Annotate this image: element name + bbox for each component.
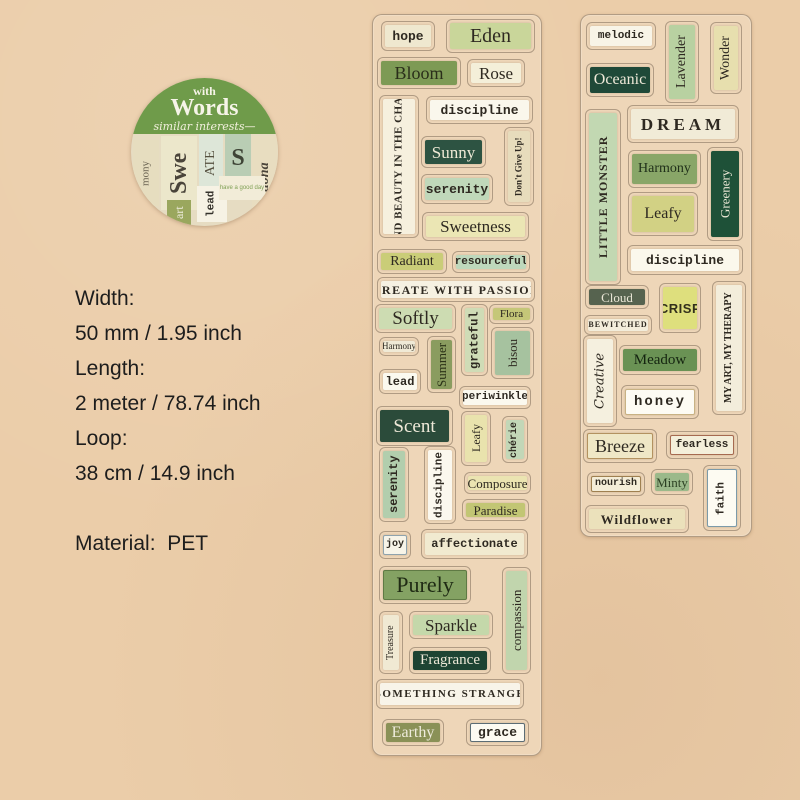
sticker-compassion: compassion	[502, 567, 531, 674]
sticker-affectionate: affectionate	[421, 529, 528, 559]
sticker-word-label: Creative	[587, 339, 613, 423]
sticker-word-label: lead	[383, 373, 417, 390]
sticker-word-label: honey	[625, 389, 695, 415]
sticker-word-label: SOMETHING STRANGE	[380, 683, 520, 705]
sticker-create-with-passion: CREATE WITH PASSION	[377, 277, 535, 302]
sticker-word-label: Fragrance	[413, 651, 487, 670]
spec-width-value: 50 mm / 1.95 inch	[75, 316, 261, 351]
sticker-scent: Scent	[376, 406, 453, 446]
sticker-rose: Rose	[467, 59, 525, 87]
sticker-word-label: Meadow	[623, 349, 697, 371]
spec-width-label: Width:	[75, 281, 261, 316]
sticker-word-label: periwinkle	[463, 390, 527, 405]
sticker-word-label: CRISP	[663, 287, 697, 329]
sticker-word-label: joy	[383, 535, 407, 555]
sticker-word-label: serenity	[383, 451, 405, 518]
sticker-greenery: Greenery	[707, 147, 743, 241]
sticker-word-label: chérie	[506, 420, 524, 459]
sticker-word-label: Softly	[379, 308, 452, 329]
spec-length-value: 2 meter / 78.74 inch	[75, 386, 261, 421]
sticker-flora: Flora	[489, 304, 534, 324]
sticker-serenity: serenity	[421, 174, 493, 204]
sticker-joy: joy	[379, 531, 411, 559]
sticker-hope: hope	[381, 21, 435, 51]
sticker-melodic: melodic	[586, 22, 656, 50]
badge-collage-piece: art	[167, 200, 191, 226]
sticker-composure: Composure	[464, 472, 531, 494]
sticker-sunny: Sunny	[421, 136, 486, 168]
badge-header: with Words similar interests	[131, 78, 278, 134]
sticker-word-label: Flora	[493, 308, 530, 320]
sticker-word-label: fearless	[670, 435, 734, 455]
sticker-word-label: compassion	[506, 571, 527, 670]
sticker-paradise: Paradise	[462, 499, 529, 521]
sticker-harmony: Harmony	[628, 150, 701, 188]
sticker-honey: honey	[621, 385, 699, 419]
sticker-word-label: Radiant	[381, 253, 443, 270]
sticker-grateful: grateful	[461, 304, 488, 376]
sticker-something-strange: SOMETHING STRANGE	[376, 679, 524, 709]
badge-collage-piece: have a good day	[219, 176, 265, 200]
sticker-word-label: Harmony	[632, 154, 697, 184]
sticker-bewitched: BEWITCHED	[584, 315, 652, 335]
sticker-fearless: fearless	[666, 431, 738, 459]
sticker-harmony: Harmony	[379, 337, 419, 356]
sticker-earthy: Earthy	[382, 719, 444, 746]
spec-spacer	[75, 491, 261, 526]
sticker-word-label: Minty	[655, 473, 689, 491]
sticker-word-label: Purely	[383, 570, 467, 600]
sticker-creative: Creative	[583, 335, 617, 427]
sticker-word-label: Eden	[450, 23, 531, 49]
sticker-word-label: DREAM	[631, 109, 735, 139]
sticker-bisou: bisou	[491, 327, 534, 379]
sticker-bloom: Bloom	[377, 57, 461, 89]
sticker-word-label: Don't Give Up!	[508, 131, 530, 202]
sticker-word-label: Oceanic	[590, 67, 650, 93]
sticker-nourish: nourish	[587, 472, 645, 496]
sticker-word-label: discipline	[631, 249, 739, 271]
sticker-leafy: Leafy	[461, 411, 491, 466]
sticker-word-label: Greenery	[711, 151, 739, 237]
sticker-strip-right: melodicLavenderWonderOceanicLITTLE MONST…	[580, 14, 752, 537]
sticker-word-label: serenity	[425, 178, 489, 200]
sticker-discipline: discipline	[627, 245, 743, 275]
sticker-word-label: Sunny	[425, 140, 482, 164]
sticker-word-label: Leafy	[465, 415, 487, 462]
sticker-minty: Minty	[651, 469, 693, 495]
sticker-my-art-my-therapy: MY ART, MY THERAPY	[712, 281, 746, 415]
sticker-word-label: discipline	[430, 100, 529, 120]
sticker-oceanic: Oceanic	[586, 63, 654, 97]
sticker-sparkle: Sparkle	[409, 611, 493, 639]
sticker-word-label: affectionate	[425, 533, 524, 555]
sticker-don-t-give-up: Don't Give Up!	[504, 127, 534, 206]
sticker-fragrance: Fragrance	[409, 647, 491, 674]
sticker-find-beauty-in-the-chaos: FIND BEAUTY IN THE CHAOS	[379, 95, 419, 238]
sticker-dream: DREAM	[627, 105, 739, 143]
badge-collage-piece: S	[225, 134, 251, 182]
sticker-faith: faith	[703, 465, 741, 531]
sticker-ch-rie: chérie	[502, 416, 528, 463]
sticker-word-label: Wonder	[714, 26, 738, 90]
badge-collage-piece: mony	[133, 140, 159, 206]
sticker-word-label: Sweetness	[426, 216, 525, 237]
sticker-wonder: Wonder	[710, 22, 742, 94]
sticker-word-label: Harmony	[383, 341, 415, 352]
sticker-word-label: BEWITCHED	[588, 319, 648, 331]
sticker-discipline: discipline	[426, 96, 533, 124]
sticker-word-label: LITTLE MONSTER	[589, 113, 617, 281]
spec-loop-label: Loop:	[75, 421, 261, 456]
sticker-treasure: Treasure	[379, 611, 403, 674]
sticker-purely: Purely	[379, 566, 471, 604]
sticker-lavender: Lavender	[665, 21, 699, 103]
sticker-softly: Softly	[375, 304, 456, 333]
badge-title: Words	[131, 97, 278, 120]
sticker-periwinkle: periwinkle	[459, 386, 531, 409]
sticker-word-label: FIND BEAUTY IN THE CHAOS	[383, 99, 415, 234]
sticker-eden: Eden	[446, 19, 535, 53]
sticker-word-label: faith	[707, 469, 737, 527]
spec-loop-value: 38 cm / 14.9 inch	[75, 456, 261, 491]
sticker-word-label: CREATE WITH PASSION	[381, 281, 531, 298]
sticker-meadow: Meadow	[619, 345, 701, 375]
sticker-word-label: Lavender	[669, 25, 695, 99]
sticker-radiant: Radiant	[377, 249, 447, 274]
sticker-little-monster: LITTLE MONSTER	[585, 109, 621, 285]
sticker-word-label: Treasure	[383, 615, 399, 670]
sticker-discipline: discipline	[424, 446, 456, 524]
sticker-word-label: Rose	[471, 63, 521, 83]
sticker-sweetness: Sweetness	[422, 212, 529, 241]
sticker-word-label: MY ART, MY THERAPY	[716, 285, 742, 411]
sticker-word-label: grateful	[465, 308, 484, 372]
sticker-summer: Summer	[427, 336, 456, 393]
sticker-word-label: melodic	[590, 26, 652, 46]
product-specs: Width: 50 mm / 1.95 inch Length: 2 meter…	[75, 281, 261, 561]
badge-collage-piece: Swe	[161, 136, 197, 210]
sticker-wildflower: Wildflower	[585, 505, 689, 533]
sticker-serenity: serenity	[379, 447, 409, 522]
sticker-word-label: hope	[385, 25, 431, 47]
badge-subtitle: similar interests	[131, 120, 278, 133]
sticker-word-label: Bloom	[381, 61, 457, 85]
sticker-breeze: Breeze	[583, 429, 657, 463]
spec-material-value: Material: PET	[75, 526, 261, 561]
sticker-lead: lead	[379, 369, 421, 394]
sticker-grace: grace	[466, 719, 529, 746]
product-badge: monySweATEStionaleadarthave a good day w…	[131, 78, 278, 226]
sticker-word-label: grace	[470, 723, 525, 742]
sticker-crisp: CRISP	[659, 283, 701, 333]
sticker-word-label: bisou	[495, 331, 530, 375]
sticker-word-label: Scent	[380, 410, 449, 442]
sticker-word-label: resourceful	[456, 255, 526, 269]
sticker-word-label: Leafy	[632, 196, 694, 232]
sticker-word-label: Sparkle	[413, 615, 489, 635]
sticker-word-label: discipline	[428, 450, 452, 520]
sticker-strip-left: hopeEdenBloomRosedisciplineFIND BEAUTY I…	[372, 14, 542, 756]
sticker-word-label: Earthy	[386, 723, 440, 742]
sticker-word-label: Summer	[431, 340, 452, 389]
sticker-word-label: Paradise	[466, 503, 525, 517]
sticker-word-label: Cloud	[589, 289, 645, 305]
sticker-cloud: Cloud	[585, 285, 649, 309]
sticker-word-label: Breeze	[587, 433, 653, 459]
sticker-word-label: Composure	[468, 476, 527, 490]
spec-length-label: Length:	[75, 351, 261, 386]
sticker-resourceful: resourceful	[452, 251, 530, 273]
sticker-leafy: Leafy	[628, 192, 698, 236]
sticker-word-label: nourish	[591, 476, 641, 492]
sticker-word-label: Wildflower	[589, 509, 685, 529]
